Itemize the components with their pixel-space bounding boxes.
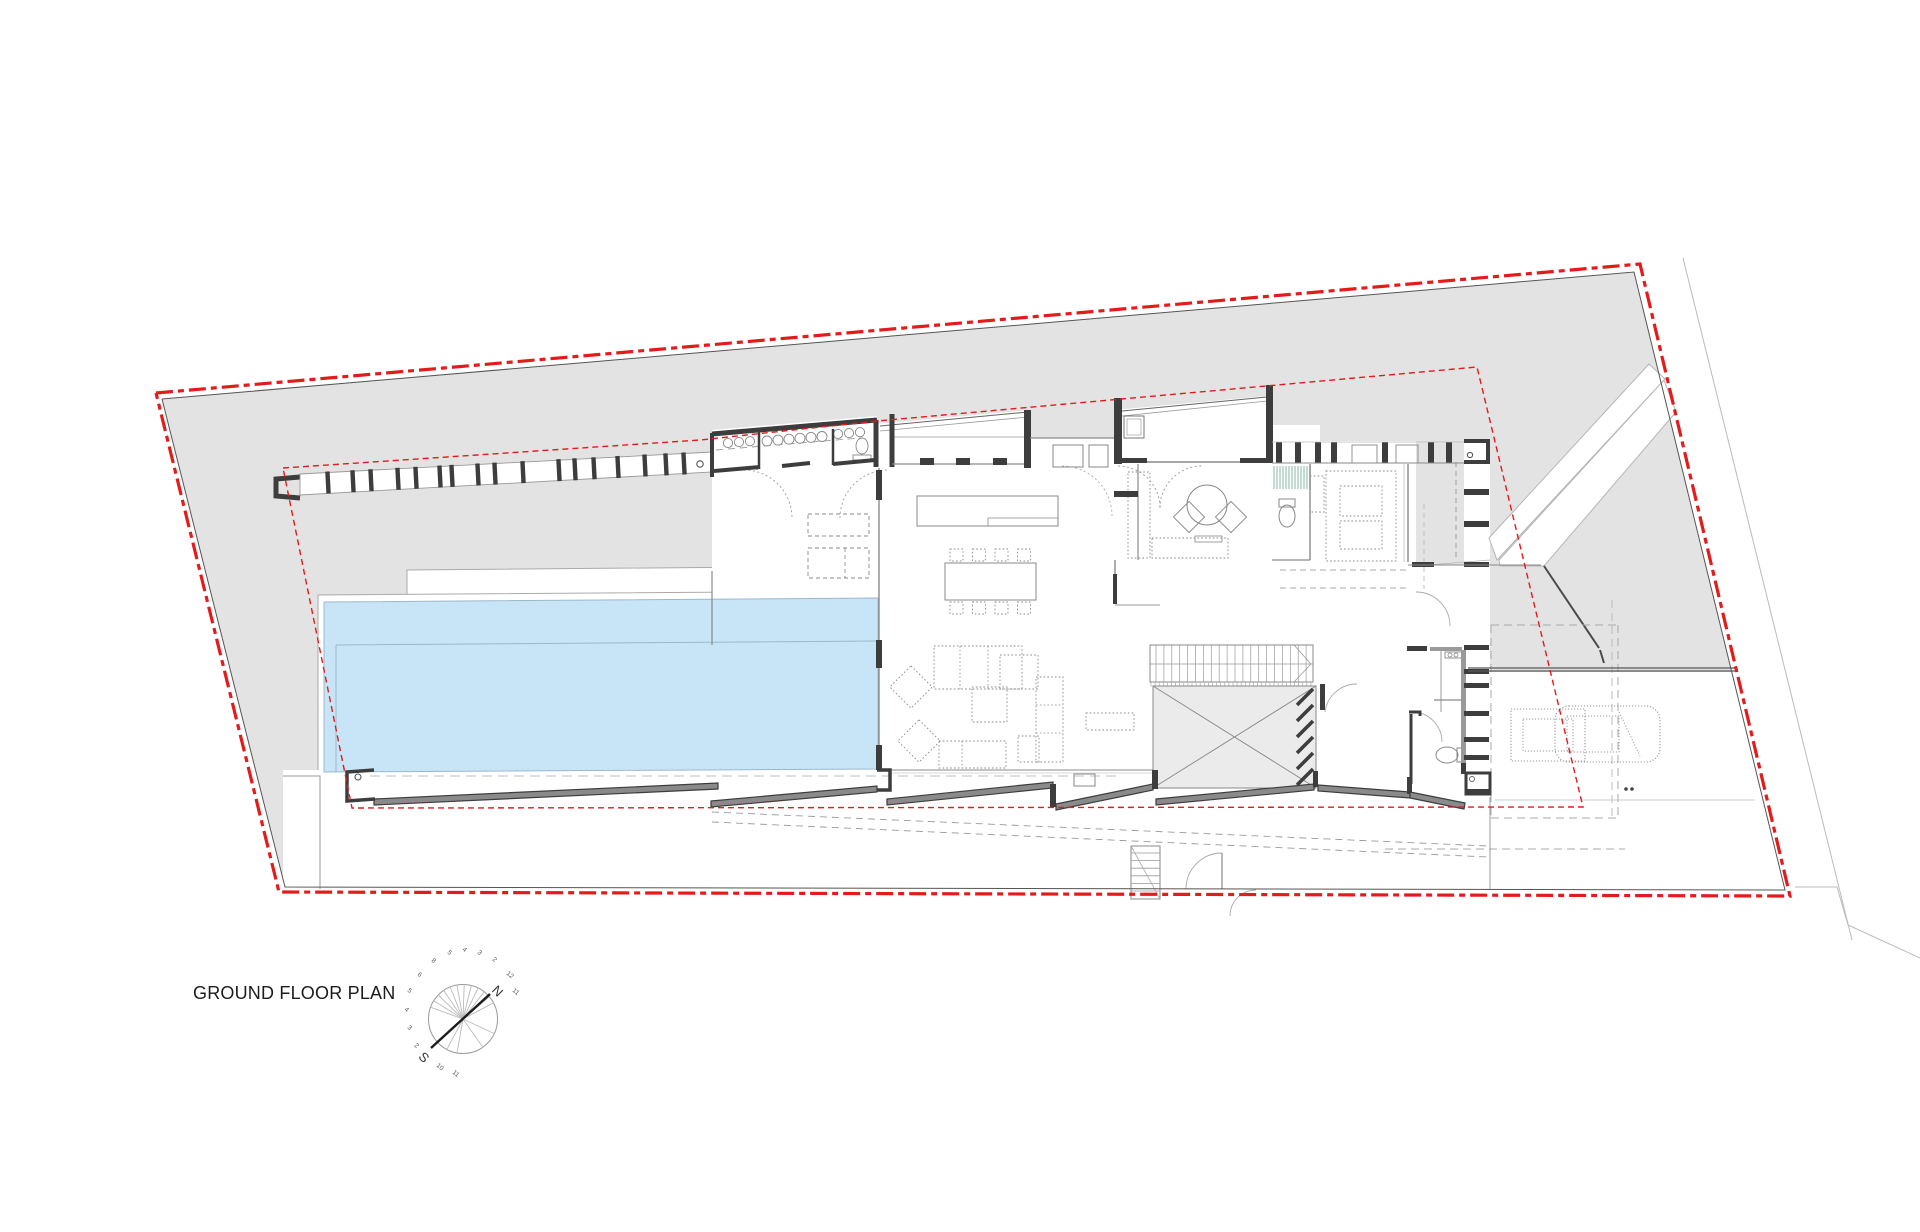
svg-text:GROUND FLOOR PLAN: GROUND FLOOR PLAN bbox=[193, 983, 395, 1003]
